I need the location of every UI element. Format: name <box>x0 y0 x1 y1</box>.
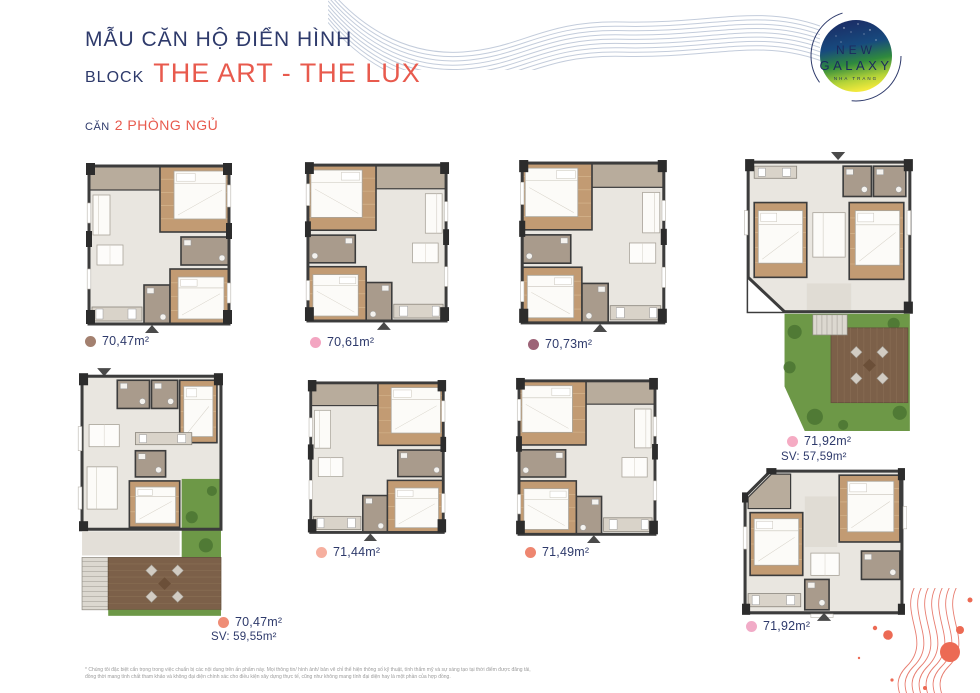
entry-arrow-icon <box>377 322 391 330</box>
unit-color-dot <box>310 337 321 348</box>
unit-area-label-4: 71,92m² <box>787 434 851 448</box>
entry-arrow-icon <box>364 533 377 541</box>
logo-text-new: NEW <box>836 43 876 57</box>
unit-sv-label-4: SV: 57,59m² <box>781 451 847 463</box>
unit-area-label-8: 71,92m² <box>746 619 810 633</box>
disclaimer-text: * Chúng tôi đặc biệt cẩn trọng trong việ… <box>85 667 550 681</box>
disclaimer-line-2: đồng thời mang tính chất tham khảo và kh… <box>85 674 550 681</box>
unit-area-label-2: 70,61m² <box>310 335 374 349</box>
page-title: MẪU CĂN HỘ ĐIỂN HÌNH <box>85 28 352 52</box>
unit-area-label-5: 70,47m² <box>218 615 282 629</box>
unit-area-text: 70,73m² <box>545 337 592 351</box>
entry-arrow-icon <box>145 325 159 333</box>
unit-type-label: 2 PHÒNG NGỦ <box>115 117 219 133</box>
floor-plan-unit-4 <box>742 150 916 435</box>
block-prefix-label: BLOCK <box>85 69 144 87</box>
brochure-page: MẪU CĂN HỘ ĐIỂN HÌNH BLOCK THE ART - THE… <box>0 0 980 693</box>
entry-arrow-icon <box>587 535 601 543</box>
entry-arrow-icon <box>593 324 607 332</box>
block-title: BLOCK THE ART - THE LUX <box>85 58 421 89</box>
entry-arrow-icon <box>831 152 845 160</box>
unit-area-label-6: 71,44m² <box>316 545 380 559</box>
floor-plan-unit-6 <box>306 378 448 543</box>
floor-plan-unit-7 <box>514 376 660 545</box>
unit-area-text: 71,44m² <box>333 545 380 559</box>
unit-type-prefix-label: CĂN <box>85 121 110 133</box>
floor-plan-unit-2 <box>303 160 451 332</box>
unit-area-text: 71,92m² <box>763 619 810 633</box>
unit-area-text: 71,92m² <box>804 434 851 448</box>
unit-sv-label-5: SV: 59,55m² <box>211 631 277 643</box>
unit-area-label-3: 70,73m² <box>528 337 592 351</box>
unit-color-dot <box>787 436 798 447</box>
unit-area-label-7: 71,49m² <box>525 545 589 559</box>
logo-text-nhatrang: NHA TRANG <box>834 76 878 81</box>
unit-area-text: 70,47m² <box>235 615 282 629</box>
unit-type-title: CĂN 2 PHÒNG NGỦ <box>85 117 218 133</box>
unit-color-dot <box>746 621 757 632</box>
floor-plan-unit-1 <box>84 161 234 335</box>
floor-plan-unit-5 <box>77 366 226 618</box>
unit-area-text: 70,61m² <box>327 335 374 349</box>
disclaimer-line-1: * Chúng tôi đặc biệt cẩn trọng trong việ… <box>85 667 550 674</box>
unit-color-dot <box>218 617 229 628</box>
unit-color-dot <box>528 339 539 350</box>
logo-text-galaxy: GALAXY <box>819 58 892 73</box>
floor-plan-unit-3 <box>517 158 669 334</box>
unit-area-text: 70,47m² <box>102 334 149 348</box>
unit-color-dot <box>85 336 96 347</box>
floor-plan-unit-8 <box>740 466 907 622</box>
unit-color-dot <box>525 547 536 558</box>
new-galaxy-logo: NEW GALAXY NHA TRANG <box>806 6 906 106</box>
block-name-label: THE ART - THE LUX <box>153 58 421 89</box>
unit-area-text: 71,49m² <box>542 545 589 559</box>
unit-area-label-1: 70,47m² <box>85 334 149 348</box>
unit-color-dot <box>316 547 327 558</box>
